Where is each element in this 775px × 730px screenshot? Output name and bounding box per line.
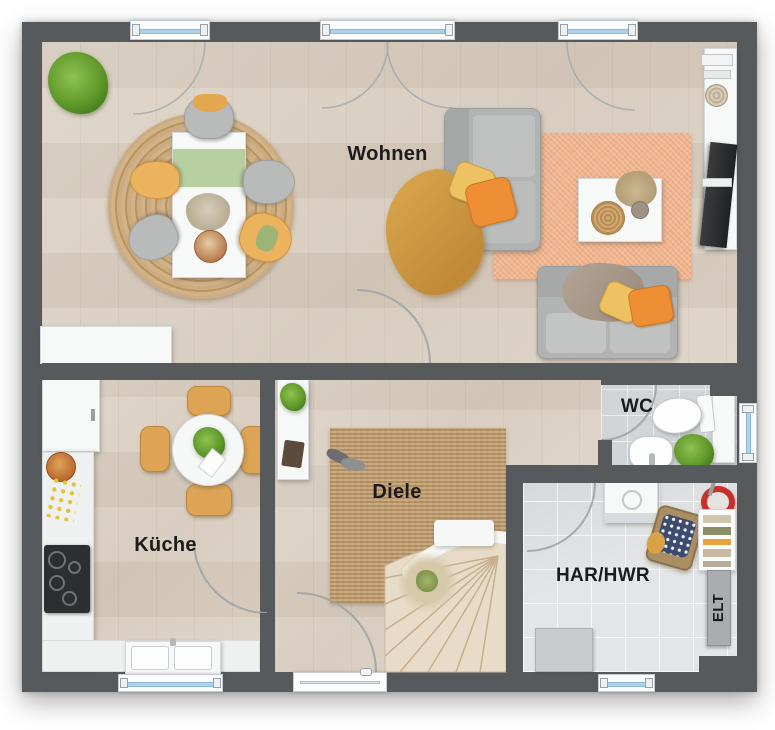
door-leaf-line	[300, 681, 381, 684]
window-kitchen	[118, 674, 223, 692]
washer-panel	[605, 513, 657, 522]
window-top-1	[130, 20, 210, 40]
chair-throw	[193, 94, 227, 112]
sink-basin	[131, 646, 169, 670]
label-har-hwr: HAR/HWR	[537, 565, 669, 587]
dining-chair-north	[184, 95, 234, 139]
book-stack	[702, 178, 732, 187]
wall-kueche-east-upper	[260, 380, 275, 535]
wall-wc-corner	[710, 385, 737, 396]
hall-cabinet	[277, 378, 309, 480]
window-top-3	[558, 20, 638, 40]
front-door	[293, 672, 387, 692]
wall-har-west	[506, 465, 523, 672]
burner	[62, 591, 77, 606]
decor-grass	[398, 550, 456, 614]
cabinet-books	[281, 440, 304, 469]
towel	[703, 549, 731, 557]
window-glass	[564, 29, 631, 34]
fridge	[42, 376, 100, 452]
wall-har-north-right	[595, 465, 737, 483]
towel	[703, 561, 731, 567]
towel	[703, 515, 731, 523]
towel	[703, 527, 731, 535]
dining-chair-west	[130, 161, 180, 199]
burner	[48, 551, 66, 569]
vase	[631, 201, 649, 219]
kitchen-table	[172, 414, 244, 486]
towel-shelf	[698, 509, 736, 571]
washer-door	[622, 490, 642, 510]
cabinet-plant	[280, 383, 306, 411]
sofa-second	[537, 266, 678, 359]
cooktop	[44, 545, 90, 613]
dining-chair-east	[243, 160, 295, 204]
window-wc	[739, 403, 757, 463]
sink-basin	[174, 646, 212, 670]
floor-plan: Wohnen Küche Diele WC HAR/HWR ELT	[0, 0, 775, 730]
har-appliance	[535, 628, 593, 672]
label-wohnen: Wohnen	[340, 143, 435, 166]
label-elt: ELT	[699, 588, 739, 628]
front-door-handle	[360, 668, 372, 676]
sideboard	[40, 326, 172, 364]
napkin	[253, 223, 281, 254]
decor-tray	[591, 201, 625, 235]
dining-table	[172, 132, 246, 278]
towel	[703, 539, 731, 545]
window-glass	[330, 29, 444, 34]
dried-bouquet	[185, 193, 231, 231]
label-kueche: Küche	[118, 534, 213, 557]
book-stack	[703, 70, 731, 79]
fridge-handle	[91, 409, 95, 421]
window-glass	[746, 408, 751, 458]
window-glass	[603, 682, 650, 687]
food-bowl	[194, 230, 227, 263]
label-wc: WC	[614, 396, 660, 418]
wall-wc-stub	[598, 440, 612, 468]
book-stack	[701, 54, 733, 66]
faucet	[170, 638, 176, 646]
washing-machine	[604, 477, 658, 523]
decor-grass-green	[416, 570, 438, 592]
kitchen-chair-north	[187, 386, 231, 416]
wall-wc-north	[601, 363, 737, 385]
burner	[49, 575, 65, 591]
table-runner	[173, 149, 245, 187]
window-top-2	[320, 20, 455, 40]
wall-kueche-east-lower	[260, 613, 275, 672]
kitchen-chair-south	[186, 484, 232, 516]
burner	[68, 561, 81, 574]
window-glass	[136, 29, 203, 34]
decor-basket	[705, 84, 728, 107]
window-har	[598, 674, 655, 692]
window-glass	[126, 682, 215, 687]
stair-half-wall	[434, 520, 494, 546]
wall-wohnen-south-right	[430, 363, 601, 380]
pillow-orange	[627, 284, 675, 329]
coffee-table	[578, 178, 662, 242]
label-diele: Diele	[362, 481, 432, 504]
wall-wohnen-south-left	[42, 363, 357, 380]
kitchen-sink	[125, 641, 221, 675]
har-corner-niche	[699, 656, 737, 672]
kitchen-chair-west	[140, 426, 170, 472]
